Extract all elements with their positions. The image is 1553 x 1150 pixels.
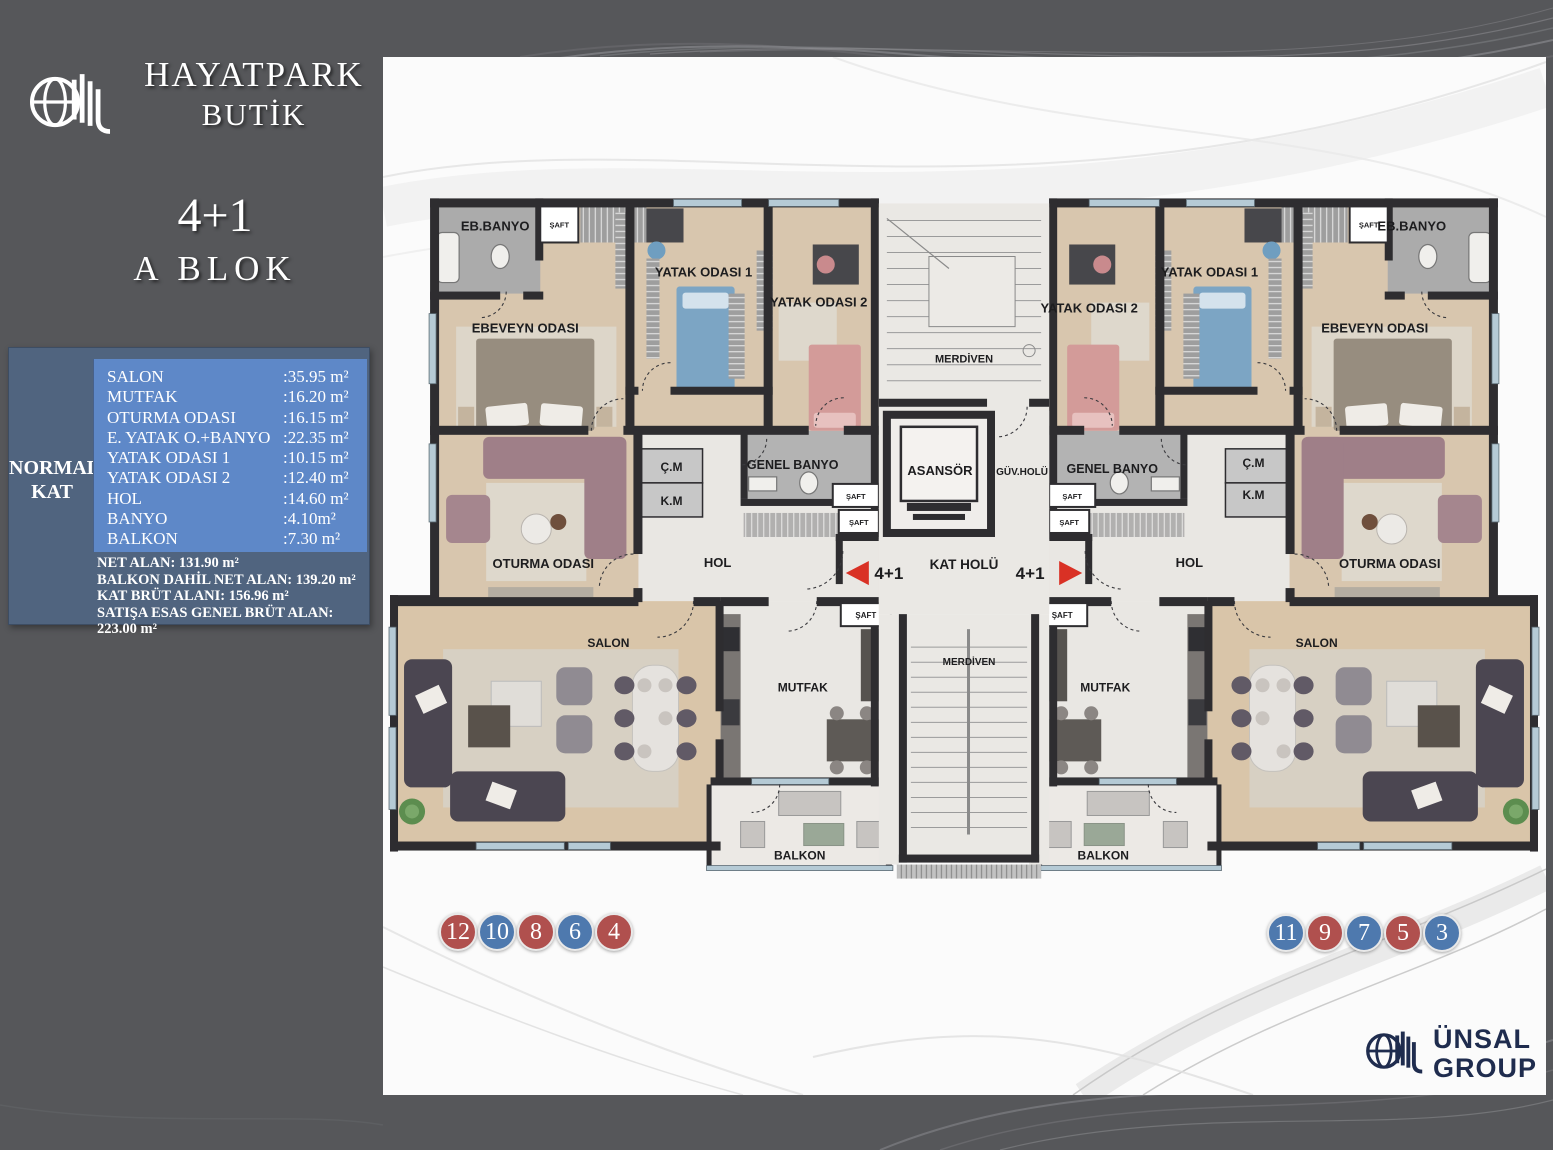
saft-label: ŞAFT [1062,492,1082,501]
label-merdiven-top: MERDİVEN [935,353,993,366]
room-label-mutfak-left: MUTFAK [778,680,828,694]
label-kat-holu: KAT HOLÜ [930,557,999,572]
left-rail: HAYATPARK BUTİK 4+1 A BLOK NORMAL KAT SA… [0,0,383,1150]
closet-label-cm-left: Ç.M [660,460,682,474]
floor-label-line2: KAT [9,480,95,504]
room-area-row: OTURMA ODASI:16.15 m² [107,408,367,428]
room-area: :7.30 m² [283,529,340,549]
brand-line1: HAYATPARK [120,55,388,95]
saft-label: ŞAFT [849,518,869,527]
room-label-hol-left: HOL [704,555,732,570]
room-area-row: E. YATAK O.+BANYO:22.35 m² [107,428,367,448]
label-merdiven-bottom: MERDİVEN [943,655,996,668]
room-label-genel-banyo-right: GENEL BANYO [1066,462,1158,476]
unit-number-badge: 7 [1345,914,1383,952]
unit-numbers-left: 12 10 8 6 4 [439,913,633,951]
footer-logo-line2: GROUP [1433,1054,1537,1083]
room-area-list: SALON:35.95 m² MUTFAK:16.20 m² OTURMA OD… [93,359,367,552]
floor-label-line1: NORMAL [9,456,95,480]
unit-number-badge: 9 [1306,914,1344,952]
room-name: YATAK ODASI 1 [107,448,283,468]
room-label-mutfak-right: MUTFAK [1080,680,1130,694]
room-label-eb-banyo-right: EB.BANYO [1377,218,1446,233]
plan-panel: EB.BANYO ŞAFT EBEVEYN ODASI YATAK ODASI … [383,57,1546,1095]
room-name: SALON [107,367,283,387]
room-area-row: YATAK ODASI 1:10.15 m² [107,448,367,468]
room-label-oturma-left: OTURMA ODASI [493,556,594,571]
room-label-eb-banyo-left: EB.BANYO [461,218,530,233]
room-name: BANYO [107,509,283,529]
unit-numbers-right: 11 9 7 5 3 [1267,914,1461,952]
room-name: HOL [107,489,283,509]
block-name: A BLOK [55,249,375,289]
room-name: E. YATAK O.+BANYO [107,428,283,448]
room-name: MUTFAK [107,387,283,407]
room-label-hol-right: HOL [1176,555,1204,570]
saft-label: ŞAFT [1059,518,1079,527]
room-area-row: YATAK ODASI 2:12.40 m² [107,468,367,488]
room-label-yatak2-left: YATAK ODASI 2 [770,295,867,310]
floor-plan: EB.BANYO ŞAFT EBEVEYN ODASI YATAK ODASI … [388,198,1540,882]
saft-label: ŞAFT [1052,611,1073,620]
room-name: OTURMA ODASI [107,408,283,428]
unit-number-badge: 11 [1267,914,1305,952]
room-area: :35.95 m² [283,367,349,387]
label-apt-type-right: 4+1 [1016,564,1045,583]
room-name: BALKON [107,529,283,549]
unit-number-badge: 3 [1423,914,1461,952]
room-area: :16.20 m² [283,387,349,407]
room-label-yatak2-right: YATAK ODASI 2 [1041,301,1138,316]
label-guv-holu: GÜV.HOLÜ [996,465,1048,478]
total-net-alan: NET ALAN: 131.90 m² [97,555,369,572]
saft-label: ŞAFT [550,220,570,229]
brand-line2: BUTİK [120,97,388,133]
room-area-row: HOL:14.60 m² [107,489,367,509]
total-balkon-dahil: BALKON DAHİL NET ALAN: 139.20 m² [97,572,369,589]
room-area: :14.60 m² [283,489,349,509]
room-area-row: BANYO:4.10m² [107,509,367,529]
globe-building-icon [28,63,114,146]
unit-type: 4+1 [55,188,375,243]
area-info-box: NORMAL KAT SALON:35.95 m² MUTFAK:16.20 m… [8,347,370,625]
unit-type-block: 4+1 A BLOK [55,188,375,289]
room-label-balkon-right: BALKON [1078,849,1129,863]
footer-logo-text: ÜNSAL GROUP [1433,1025,1537,1083]
room-area: :4.10m² [283,509,336,529]
apartment-right [1035,198,1539,870]
room-label-ebeveyn-left: EBEVEYN ODASI [472,321,579,336]
saft-label: ŞAFT [846,492,866,501]
globe-building-icon [1365,1023,1425,1084]
room-area-row: MUTFAK:16.20 m² [107,387,367,407]
saft-label: ŞAFT [855,611,876,620]
unit-number-badge: 6 [556,913,594,951]
room-label-yatak1-right: YATAK ODASI 1 [1161,265,1258,280]
floor-label: NORMAL KAT [9,456,95,504]
room-area-row: BALKON:7.30 m² [107,529,367,549]
room-area-row: SALON:35.95 m² [107,367,367,387]
total-satis-brut: SATIŞA ESAS GENEL BRÜT ALAN: 223.00 m² [97,605,369,638]
label-apt-type-left: 4+1 [874,564,903,583]
saft-label: ŞAFT [1359,220,1379,229]
footer-logo-line1: ÜNSAL [1433,1025,1537,1054]
room-area: :22.35 m² [283,428,349,448]
brand-logo: HAYATPARK BUTİK [28,55,388,146]
room-label-balkon-left: BALKON [774,849,825,863]
unit-number-badge: 10 [478,913,516,951]
room-label-salon-right: SALON [1296,636,1338,650]
closet-label-km-left: K.M [660,494,682,508]
room-label-oturma-right: OTURMA ODASI [1339,556,1440,571]
footer-logo: ÜNSAL GROUP [1365,1023,1537,1084]
room-area: :16.15 m² [283,408,349,428]
unit-number-badge: 12 [439,913,477,951]
room-label-salon-left: SALON [587,636,629,650]
unit-number-badge: 4 [595,913,633,951]
unit-number-badge: 8 [517,913,555,951]
closet-label-cm-right: Ç.M [1242,456,1264,470]
room-label-ebeveyn-right: EBEVEYN ODASI [1321,321,1428,336]
brand-text: HAYATPARK BUTİK [120,55,388,133]
total-kat-brut: KAT BRÜT ALANI: 156.96 m² [97,588,369,605]
unit-number-badge: 5 [1384,914,1422,952]
label-asansor: ASANSÖR [907,463,973,478]
totals-block: NET ALAN: 131.90 m² BALKON DAHİL NET ALA… [97,555,369,638]
room-label-genel-banyo-left: GENEL BANYO [747,458,839,472]
room-area: :12.40 m² [283,468,349,488]
closet-label-km-right: K.M [1242,488,1264,502]
room-label-yatak1-left: YATAK ODASI 1 [655,265,752,280]
room-area: :10.15 m² [283,448,349,468]
room-name: YATAK ODASI 2 [107,468,283,488]
